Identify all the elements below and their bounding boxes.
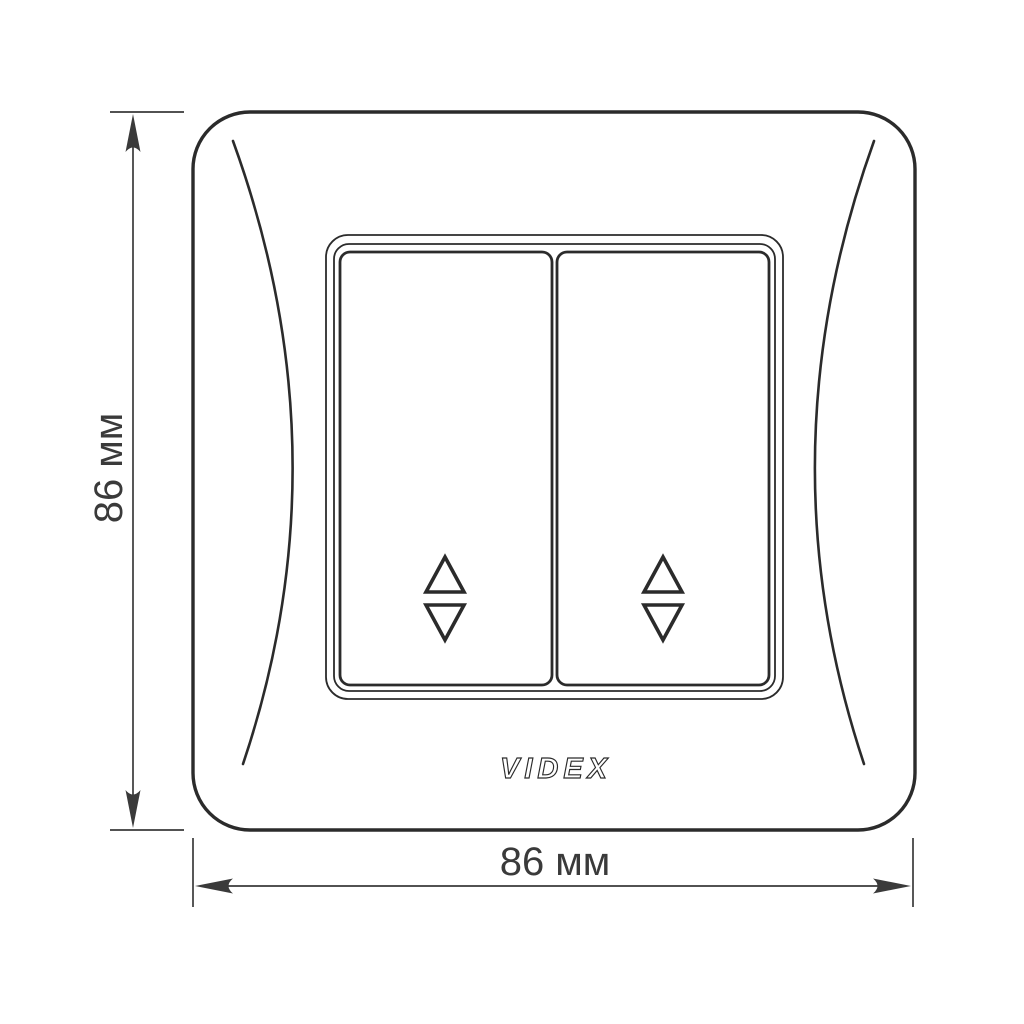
arrow-left-icon — [195, 879, 233, 894]
arrow-right-icon — [873, 879, 911, 894]
rocker-button-right — [557, 252, 769, 685]
faceplate — [193, 112, 915, 830]
arrow-up-icon — [126, 114, 141, 152]
arrow-down-icon — [126, 790, 141, 828]
height-dimension-label: 86 мм — [89, 413, 129, 524]
rocker-button-left — [340, 252, 552, 685]
brand-logo: VIDEX — [500, 753, 612, 785]
width-dimension-label: 86 мм — [500, 842, 611, 882]
faceplate-outline — [193, 112, 915, 830]
diagram-canvas: VIDEX 86 мм 86 мм — [0, 0, 1024, 1024]
